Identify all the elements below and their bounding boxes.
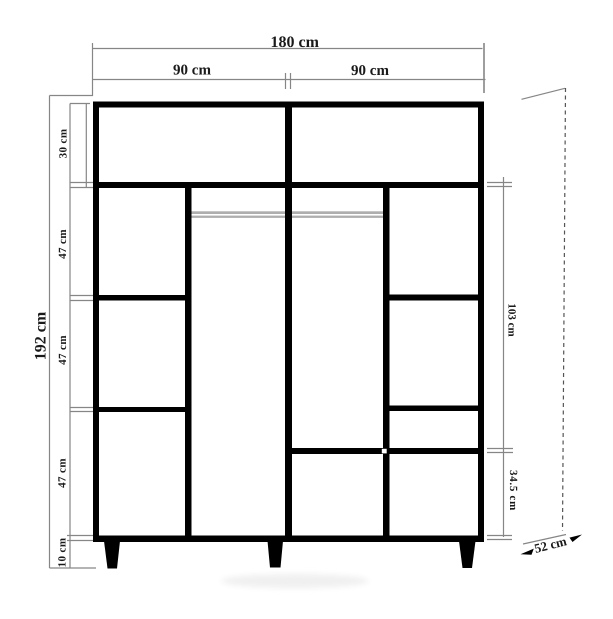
svg-text:47 cm: 47 cm [57, 229, 69, 259]
svg-text:192 cm: 192 cm [33, 311, 50, 360]
svg-text:10 cm: 10 cm [57, 538, 69, 568]
svg-text:103 cm: 103 cm [506, 303, 518, 336]
svg-text:90 cm: 90 cm [173, 63, 211, 79]
svg-text:47 cm: 47 cm [57, 335, 69, 365]
svg-text:90 cm: 90 cm [351, 63, 389, 79]
svg-text:47 cm: 47 cm [57, 458, 69, 488]
svg-text:52 cm: 52 cm [533, 533, 569, 556]
svg-text:180 cm: 180 cm [270, 34, 319, 51]
svg-text:30 cm: 30 cm [58, 129, 70, 159]
svg-text:34.5 cm: 34.5 cm [507, 470, 519, 511]
